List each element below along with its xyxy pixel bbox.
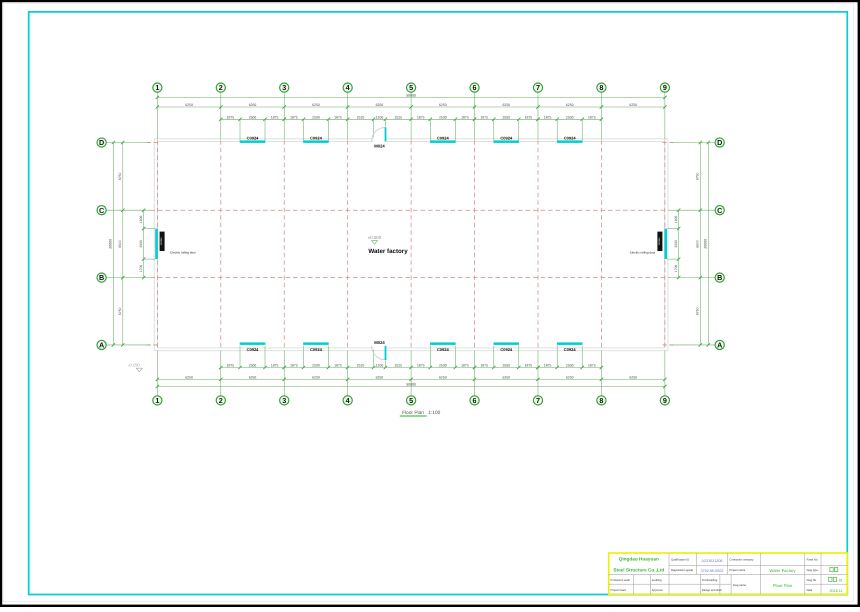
svg-text:6250: 6250 [439,103,447,107]
svg-text:1:100: 1:100 [428,410,440,416]
svg-text:JM3045: JM3045 [160,237,163,246]
svg-text:C0924: C0924 [500,347,513,352]
svg-text:Project name: Project name [729,569,745,572]
svg-text:2500: 2500 [249,364,257,368]
svg-text:8: 8 [599,396,603,405]
svg-text:6250: 6250 [185,103,193,107]
svg-text:D: D [717,138,722,147]
svg-text:1: 1 [155,396,159,405]
svg-text:A231521208: A231521208 [702,559,723,563]
svg-text:1875: 1875 [544,364,552,368]
svg-text:1: 1 [155,83,159,92]
svg-text:6750: 6750 [118,307,122,315]
svg-text:Registration grade: Registration grade [671,569,693,572]
svg-text:6250: 6250 [185,376,193,380]
svg-text:±0.000: ±0.000 [368,235,382,240]
svg-text:B: B [717,273,722,282]
svg-text:C: C [99,206,104,215]
svg-text:A: A [717,341,722,350]
svg-text:2500: 2500 [439,115,447,119]
svg-text:2525: 2525 [394,364,402,368]
svg-text:1200: 1200 [376,364,384,368]
svg-text:1875: 1875 [588,115,596,119]
svg-text:2500: 2500 [249,115,257,119]
svg-text:6500: 6500 [696,240,700,248]
svg-text:8: 8 [599,83,603,92]
svg-text:1875: 1875 [525,115,533,119]
svg-text:Steel Structure Co.,Ltd: Steel Structure Co.,Ltd [613,567,664,572]
svg-text:1700: 1700 [674,265,678,273]
svg-text:6: 6 [473,83,477,92]
svg-text:2525: 2525 [394,115,402,119]
svg-text:50000: 50000 [406,383,416,387]
svg-text:1875: 1875 [290,364,298,368]
svg-text:1800: 1800 [674,216,678,224]
svg-text:4: 4 [346,83,350,92]
svg-text:3000: 3000 [674,240,678,248]
svg-text:A: A [99,341,104,350]
svg-text:Contractor company: Contractor company [729,558,754,561]
svg-text:C0924: C0924 [247,135,260,140]
svg-text:2525: 2525 [357,115,365,119]
svg-text:2018.11: 2018.11 [829,589,842,593]
svg-text:6750: 6750 [696,173,700,181]
svg-text:C0924: C0924 [310,347,323,352]
svg-text:1875: 1875 [525,364,533,368]
svg-text:Fixed No.: Fixed No. [807,558,819,561]
svg-text:6250: 6250 [566,376,574,380]
svg-text:2500: 2500 [566,115,574,119]
svg-text:1200: 1200 [376,115,384,119]
svg-text:1875: 1875 [334,364,342,368]
svg-text:3: 3 [282,396,286,405]
svg-text:6: 6 [473,396,477,405]
svg-text:9: 9 [663,83,667,92]
svg-text:Qingdao Huayuan: Qingdao Huayuan [619,556,659,561]
svg-text:7: 7 [536,83,540,92]
svg-text:C0924: C0924 [310,135,323,140]
svg-text:1875: 1875 [334,115,342,119]
svg-text:3000: 3000 [139,240,143,248]
svg-text:B: B [99,273,104,282]
svg-text:C0924: C0924 [500,135,513,140]
svg-text:M024: M024 [374,143,385,148]
svg-text:Qualification ID: Qualification ID [671,558,689,561]
svg-text:6750: 6750 [118,173,122,181]
svg-text:Water Factory: Water Factory [769,568,796,573]
svg-text:Proofreading: Proofreading [702,579,718,582]
svg-text:2500: 2500 [439,364,447,368]
svg-text:5: 5 [409,83,413,92]
svg-text:1875: 1875 [461,115,469,119]
svg-text:Floor Plan: Floor Plan [773,583,793,588]
svg-text:4: 4 [346,396,350,405]
svg-text:20000: 20000 [704,239,708,249]
svg-text:6500: 6500 [118,240,122,248]
svg-text:Project head: Project head [611,589,627,592]
svg-text:Dwg type: Dwg type [807,569,819,572]
svg-text:2525: 2525 [357,364,365,368]
svg-text:-01: -01 [838,579,843,583]
svg-text:6250: 6250 [249,103,257,107]
svg-text:20000: 20000 [109,239,113,249]
svg-text:1800: 1800 [139,216,143,224]
svg-text:2500: 2500 [312,115,320,119]
svg-text:1875: 1875 [544,115,552,119]
svg-text:50000: 50000 [406,94,416,98]
svg-text:1875: 1875 [227,364,235,368]
svg-text:1875: 1875 [271,364,279,368]
svg-text:5: 5 [409,396,413,405]
svg-text:Date: Date [807,589,813,592]
svg-text:2500: 2500 [502,115,510,119]
svg-text:6250: 6250 [502,376,510,380]
svg-text:C: C [717,206,722,215]
svg-text:Design and draft: Design and draft [702,589,722,592]
svg-text:C0924: C0924 [437,347,450,352]
svg-text:6250: 6250 [312,103,320,107]
svg-text:2: 2 [219,396,223,405]
svg-text:Dwg No.: Dwg No. [807,579,818,582]
svg-text:Dwg name: Dwg name [733,584,746,587]
svg-text:2500: 2500 [502,364,510,368]
svg-text:6250: 6250 [502,103,510,107]
svg-text:C0924: C0924 [564,347,577,352]
svg-text:6250: 6250 [629,103,637,107]
svg-text:6250: 6250 [629,376,637,380]
svg-text:7: 7 [536,396,540,405]
svg-text:1875: 1875 [417,115,425,119]
svg-text:2500: 2500 [566,364,574,368]
svg-text:M024: M024 [374,340,385,345]
svg-text:3: 3 [282,83,286,92]
svg-text:Electric rolling door: Electric rolling door [170,251,196,255]
svg-text:1875: 1875 [461,364,469,368]
svg-text:C0924: C0924 [564,135,577,140]
svg-text:Auditing: Auditing [652,579,662,582]
svg-text:1700: 1700 [139,265,143,273]
svg-text:Electric rolling door: Electric rolling door [630,251,656,255]
svg-text:3702.05-5602: 3702.05-5602 [701,569,724,573]
svg-text:6250: 6250 [376,376,384,380]
svg-text:Approval: Approval [652,589,663,592]
svg-text:6250: 6250 [439,376,447,380]
svg-text:1875: 1875 [417,364,425,368]
svg-text:Water factory: Water factory [368,248,408,255]
svg-text:1875: 1875 [480,364,488,368]
svg-text:1875: 1875 [271,115,279,119]
svg-text:9: 9 [663,396,667,405]
svg-text:1875: 1875 [290,115,298,119]
svg-text:1875: 1875 [588,364,596,368]
svg-text:6250: 6250 [312,376,320,380]
svg-text:Profession audit: Profession audit [611,579,631,582]
svg-text:1875: 1875 [480,115,488,119]
svg-text:D: D [99,138,104,147]
svg-text:C0924: C0924 [437,135,450,140]
svg-text:6250: 6250 [376,103,384,107]
svg-text:C0924: C0924 [247,347,260,352]
svg-text:1875: 1875 [227,115,235,119]
svg-text:2500: 2500 [312,364,320,368]
svg-text:6250: 6250 [249,376,257,380]
svg-text:-0.150: -0.150 [128,363,141,368]
svg-text:6750: 6750 [696,307,700,315]
svg-text:6250: 6250 [566,103,574,107]
svg-text:2: 2 [219,83,223,92]
svg-text:JM3045: JM3045 [658,237,661,246]
